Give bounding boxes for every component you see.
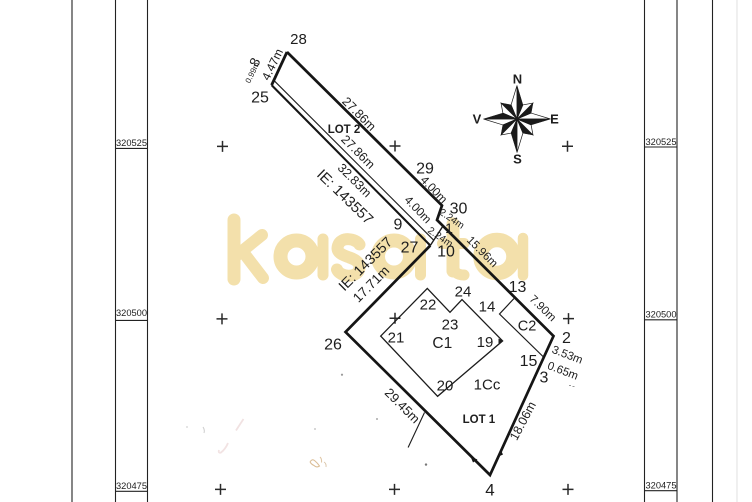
svg-text:E: E	[550, 112, 559, 127]
svg-text:4: 4	[485, 481, 494, 500]
svg-text:24: 24	[455, 284, 472, 301]
svg-text:9: 9	[394, 217, 403, 234]
svg-text:C1: C1	[432, 335, 452, 352]
svg-text:320500: 320500	[645, 310, 676, 320]
svg-text:C2: C2	[518, 318, 537, 334]
svg-text:320475: 320475	[645, 481, 676, 491]
svg-text:1Cc: 1Cc	[474, 377, 501, 394]
svg-text:320525: 320525	[645, 137, 676, 147]
svg-text:22: 22	[420, 297, 437, 314]
svg-text:LOT 1: LOT 1	[463, 414, 496, 426]
svg-text:N: N	[513, 72, 522, 87]
svg-text:19: 19	[477, 334, 494, 351]
svg-text:320525: 320525	[116, 138, 147, 148]
svg-text:21: 21	[388, 330, 405, 347]
svg-text:3: 3	[540, 370, 549, 387]
svg-text:320475: 320475	[116, 481, 147, 491]
svg-text:2: 2	[562, 330, 571, 347]
svg-text:13: 13	[509, 279, 527, 296]
svg-text:27: 27	[401, 240, 419, 257]
svg-text:25: 25	[251, 90, 269, 107]
svg-text:320500: 320500	[116, 308, 147, 318]
svg-text:LOT 2: LOT 2	[328, 124, 361, 136]
svg-text:20: 20	[437, 378, 454, 395]
svg-text:26: 26	[324, 337, 342, 354]
svg-text:S: S	[513, 152, 522, 167]
svg-text:15: 15	[520, 353, 538, 370]
svg-text:V: V	[473, 112, 482, 127]
svg-text:23: 23	[442, 317, 459, 334]
svg-text:28: 28	[290, 31, 307, 48]
svg-text:14: 14	[479, 299, 496, 316]
